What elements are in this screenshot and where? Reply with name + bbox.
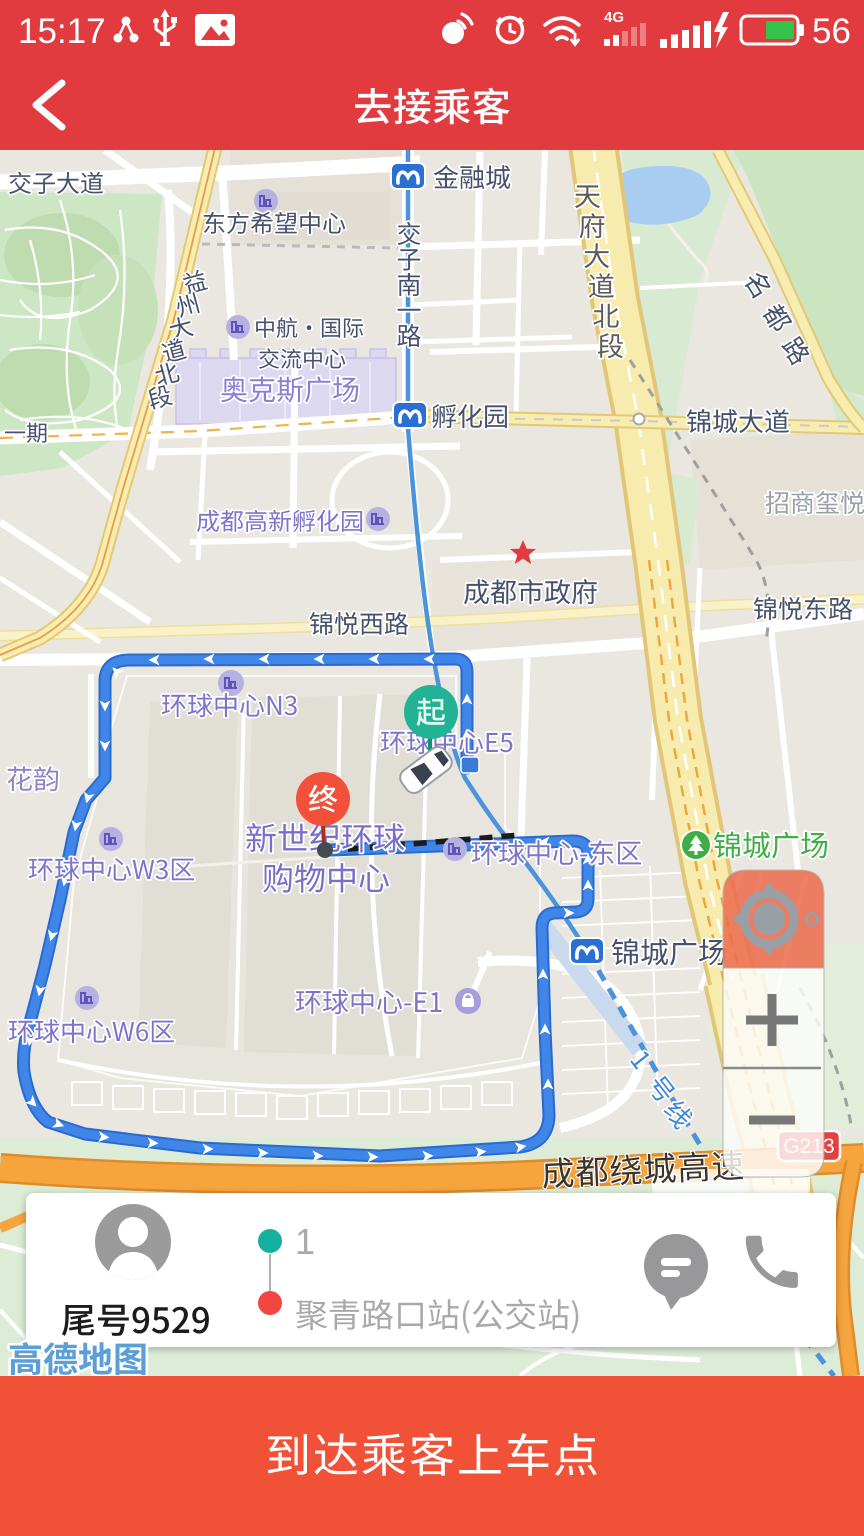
svg-text:56: 56 xyxy=(812,12,851,51)
svg-text:4G: 4G xyxy=(604,9,624,26)
svg-text:1: 1 xyxy=(295,1221,315,1262)
svg-text:15:17: 15:17 xyxy=(18,12,106,51)
